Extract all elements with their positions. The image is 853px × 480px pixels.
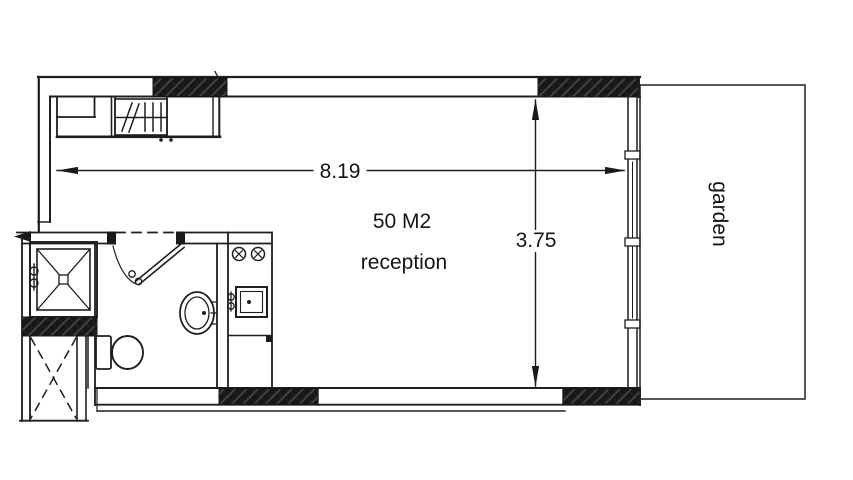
toilet-symbol xyxy=(96,336,143,369)
floor-plan: 8.19 3.75 50 M2 reception garden xyxy=(0,0,853,480)
washbasin-symbol xyxy=(180,292,217,334)
solid-wall-hatch xyxy=(153,78,227,97)
solid-wall-hatch xyxy=(22,317,97,336)
room-area-label: 50 M2 xyxy=(373,211,431,233)
height-dimension-label: 3.75 xyxy=(510,230,563,252)
arrowhead-left xyxy=(57,167,78,174)
room-name-label: reception xyxy=(361,252,447,274)
top-wall xyxy=(38,72,640,98)
bottom-wall xyxy=(95,388,640,411)
solid-wall-hatch xyxy=(538,78,638,97)
arrowhead-up xyxy=(532,99,539,120)
garden-label: garden xyxy=(708,181,730,246)
counter-dot xyxy=(169,138,173,142)
kitchen-counter xyxy=(57,97,220,142)
solid-wall-hatch xyxy=(219,389,318,404)
counter-dot xyxy=(159,138,163,142)
kitchen-unit xyxy=(228,233,272,389)
door-hinge-block xyxy=(107,232,116,245)
kitchen-sink-symbol xyxy=(236,287,267,317)
door-hinge-block xyxy=(176,232,185,245)
sliding-glass-door-symbol xyxy=(625,97,640,388)
left-wall xyxy=(38,77,50,232)
duct-shaft-symbol xyxy=(31,338,76,418)
solid-wall-hatch xyxy=(563,389,640,404)
shower-symbol xyxy=(30,242,97,317)
arrowhead-down xyxy=(532,366,539,387)
stove-burners-symbol xyxy=(233,248,265,261)
drainer-symbol xyxy=(115,99,167,135)
arrowhead-right xyxy=(605,167,626,174)
width-dimension-label: 8.19 xyxy=(314,161,367,183)
bathroom-partitions xyxy=(88,233,228,406)
hinged-door-symbol xyxy=(113,244,184,285)
